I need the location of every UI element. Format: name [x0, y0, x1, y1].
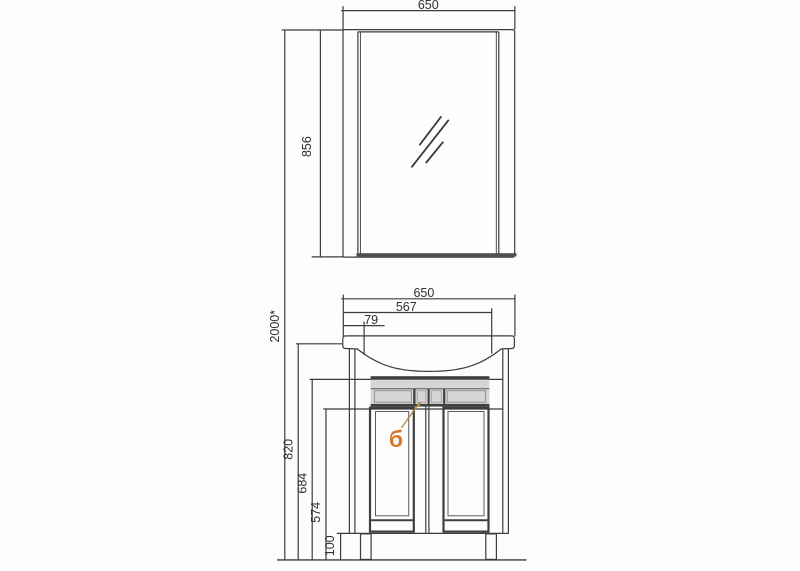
svg-text:820: 820: [282, 439, 296, 460]
svg-text:650: 650: [413, 286, 434, 300]
svg-text:856: 856: [300, 136, 314, 157]
svg-text:79: 79: [364, 313, 378, 327]
svg-text:684: 684: [296, 473, 310, 494]
svg-text:650: 650: [418, 0, 439, 12]
svg-text:574: 574: [309, 502, 323, 523]
svg-text:567: 567: [396, 300, 417, 314]
svg-text:100: 100: [323, 535, 337, 556]
svg-text:б: б: [389, 426, 403, 452]
svg-text:2000*: 2000*: [268, 310, 282, 343]
